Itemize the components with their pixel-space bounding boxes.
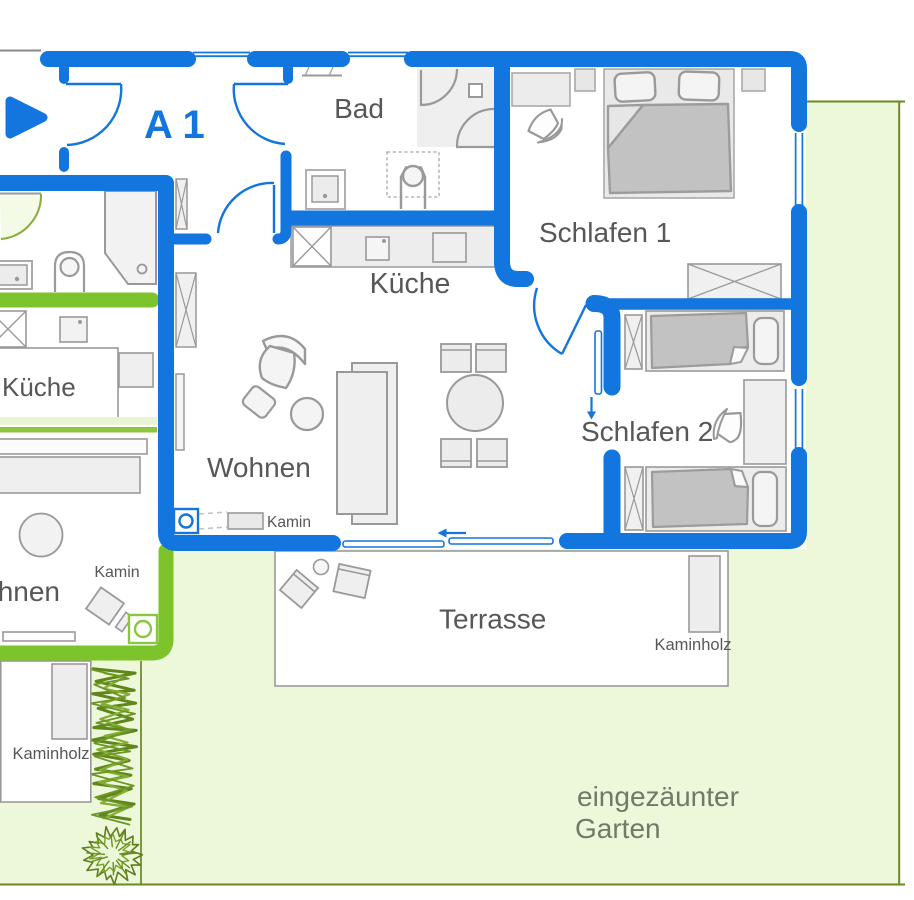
svg-text:Wohnen: Wohnen [0,576,60,607]
svg-text:Bad: Bad [334,93,384,124]
svg-text:Kaminholz: Kaminholz [12,745,89,763]
svg-text:Kamin: Kamin [267,514,311,531]
svg-text:Schlafen 2: Schlafen 2 [581,416,713,447]
svg-text:Kamin: Kamin [94,564,139,581]
svg-text:Wohnen: Wohnen [207,452,311,483]
svg-text:Schlafen 1: Schlafen 1 [539,217,671,248]
svg-text:Küche: Küche [370,268,451,300]
svg-text:Küche: Küche [2,372,76,402]
svg-text:eingezäunter: eingezäunter [577,781,739,812]
svg-text:A 1: A 1 [144,103,205,147]
svg-text:Kaminholz: Kaminholz [654,636,731,654]
svg-text:Garten: Garten [575,813,661,844]
svg-text:Terrasse: Terrasse [439,604,546,635]
